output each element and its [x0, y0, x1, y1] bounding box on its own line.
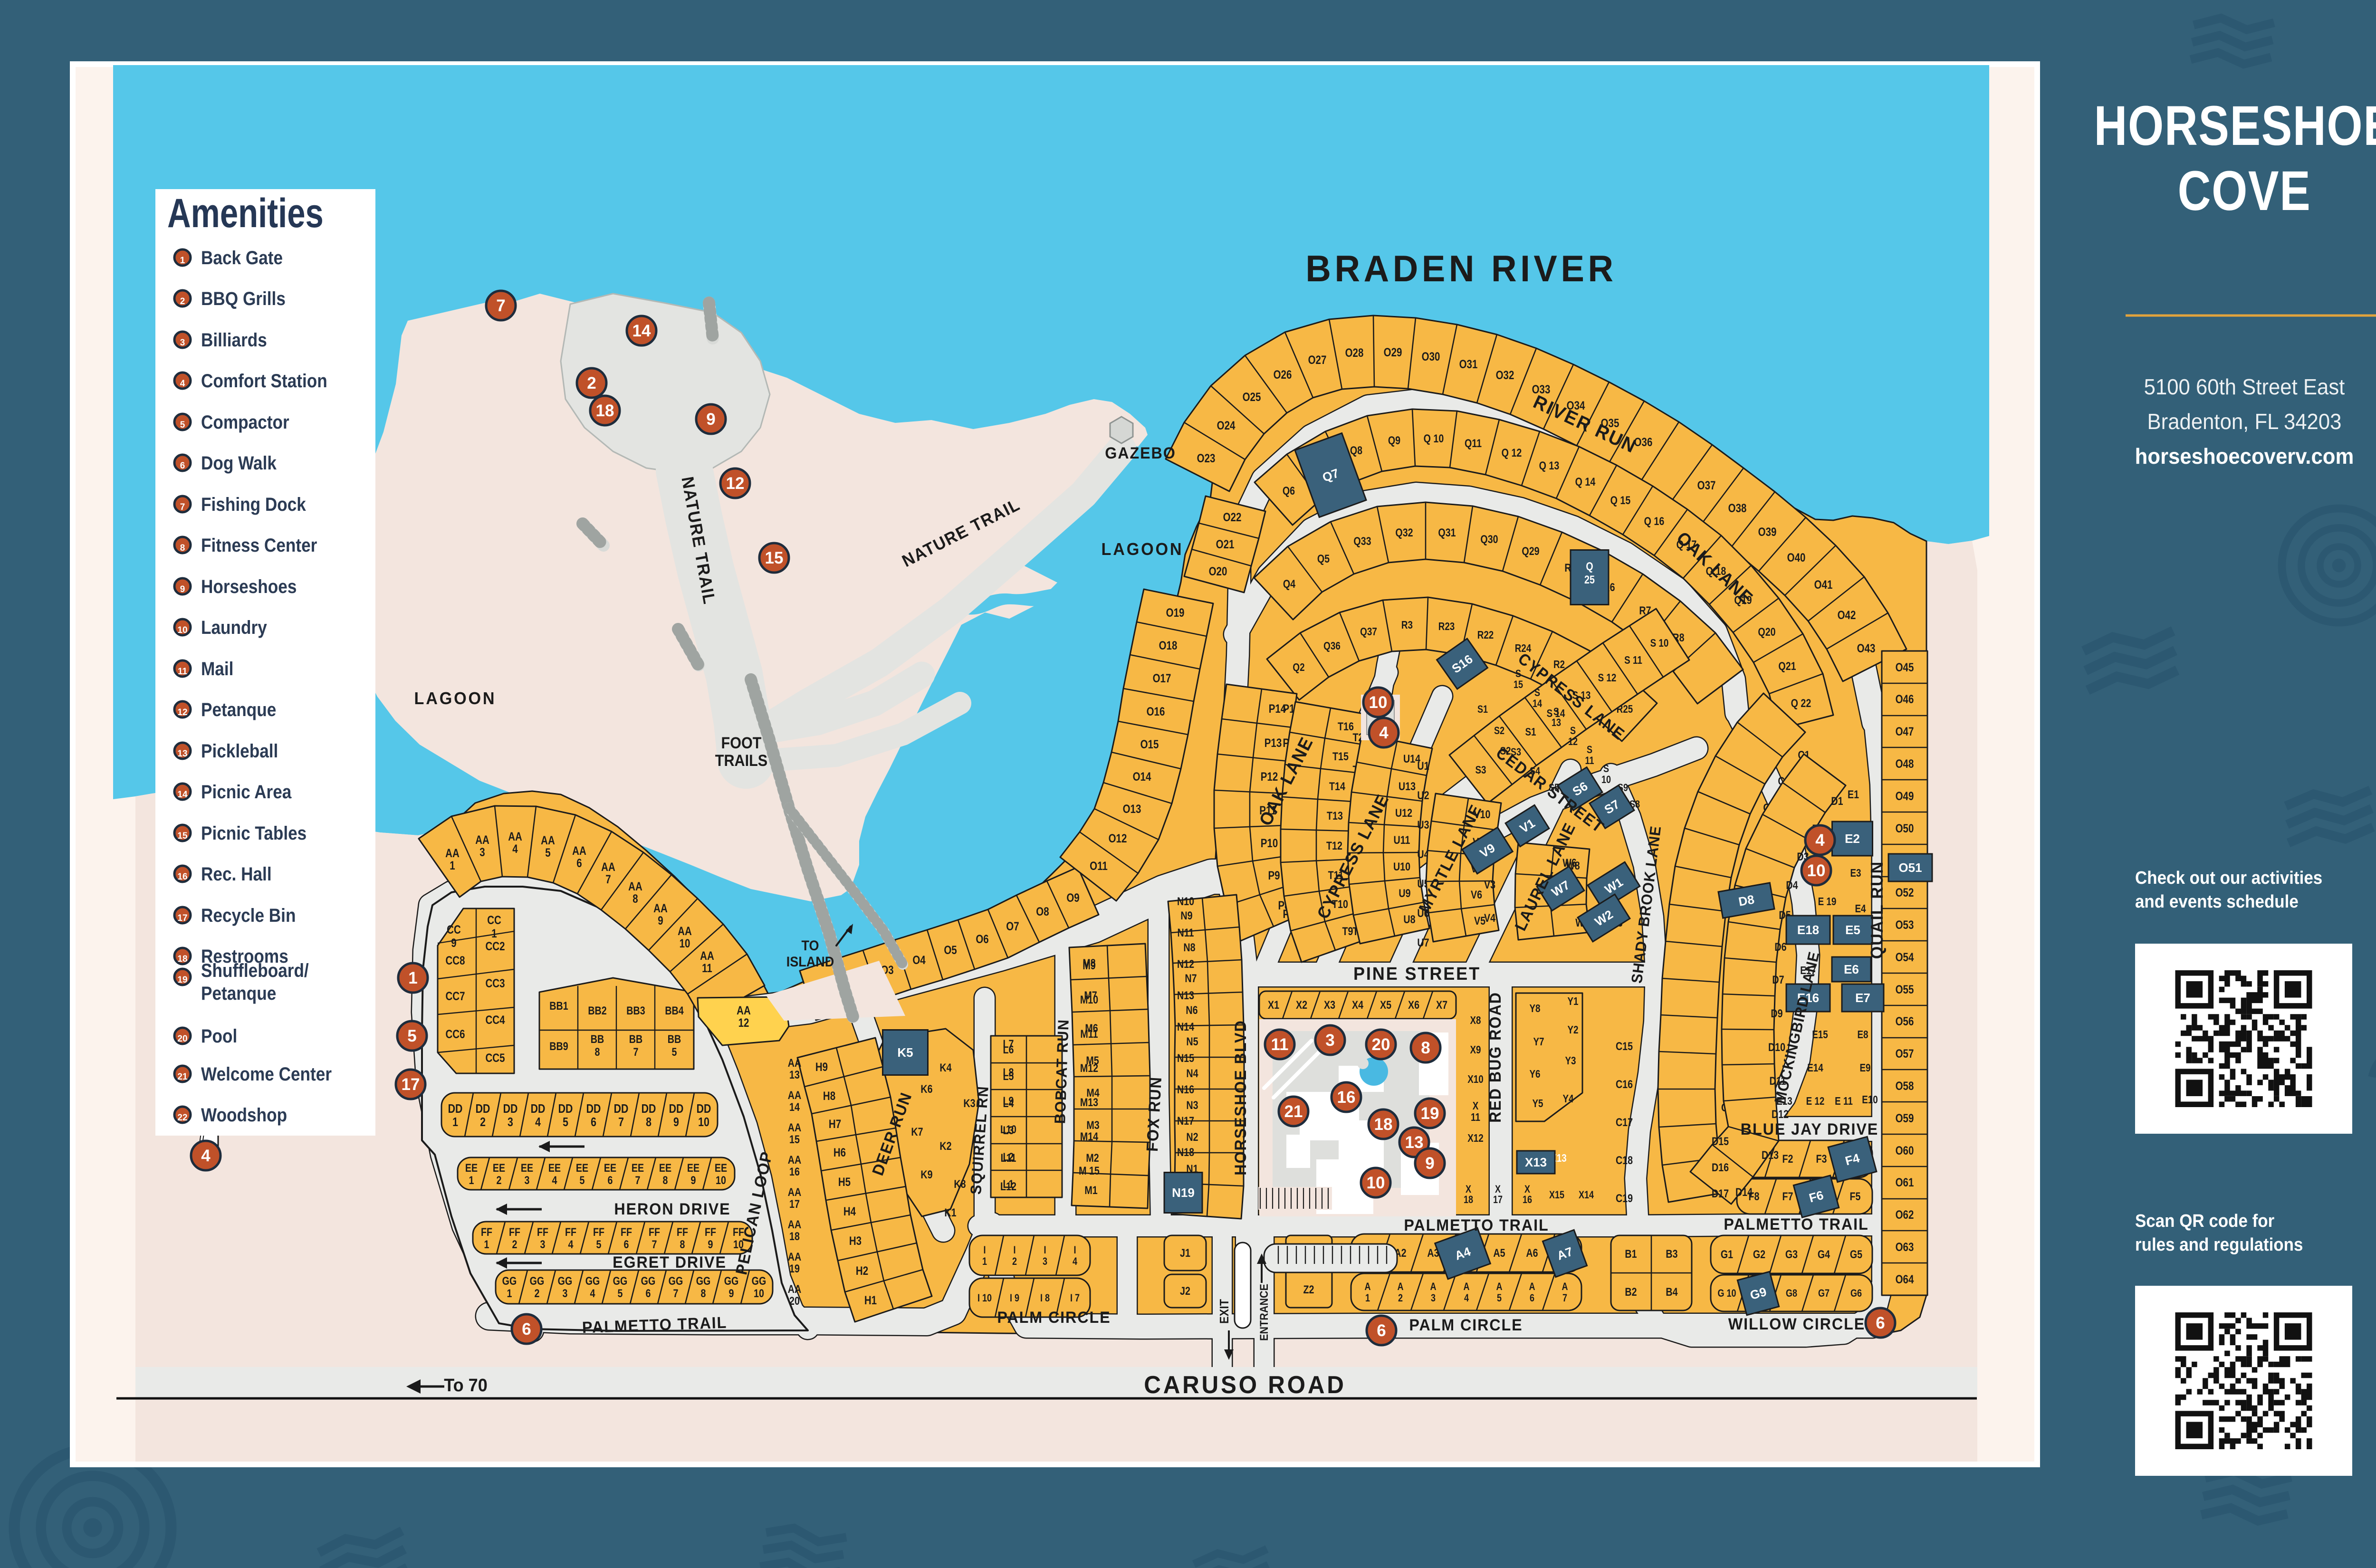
svg-text:BB: BB — [591, 1033, 604, 1045]
svg-text:Laundry: Laundry — [201, 617, 267, 638]
svg-text:G 10: G 10 — [1717, 1288, 1736, 1299]
svg-text:Comfort Station: Comfort Station — [201, 370, 327, 392]
svg-text:4: 4 — [180, 379, 185, 389]
svg-text:BRADEN RIVER: BRADEN RIVER — [1305, 248, 1617, 289]
svg-text:3: 3 — [1043, 1256, 1047, 1267]
svg-text:Amenities: Amenities — [167, 191, 324, 236]
svg-text:Picnic Area: Picnic Area — [201, 781, 292, 803]
svg-text:PALM CIRCLE: PALM CIRCLE — [1409, 1316, 1523, 1334]
svg-text:S 11: S 11 — [1624, 654, 1642, 666]
svg-text:X4: X4 — [1352, 998, 1364, 1011]
svg-text:F2: F2 — [1782, 1152, 1793, 1165]
svg-text:DD: DD — [642, 1102, 656, 1116]
svg-text:6: 6 — [608, 1174, 613, 1186]
svg-text:N5: N5 — [1186, 1035, 1198, 1048]
svg-text:QUAIL RUN: QUAIL RUN — [1868, 861, 1887, 959]
svg-text:3: 3 — [1325, 1031, 1334, 1050]
svg-text:FOOT: FOOT — [721, 734, 762, 752]
svg-text:A: A — [1364, 1281, 1370, 1292]
svg-text:RED BUG ROAD: RED BUG ROAD — [1486, 992, 1504, 1123]
svg-text:K8: K8 — [954, 1177, 966, 1190]
svg-text:K1: K1 — [944, 1206, 956, 1219]
svg-text:M1: M1 — [1084, 1184, 1097, 1196]
svg-text:M13: M13 — [1080, 1096, 1098, 1109]
svg-text:17: 17 — [1493, 1194, 1503, 1205]
svg-text:Y8: Y8 — [1529, 1003, 1540, 1014]
svg-text:CARUSO ROAD: CARUSO ROAD — [1144, 1371, 1346, 1398]
svg-text:O61: O61 — [1896, 1176, 1914, 1189]
svg-text:O48: O48 — [1896, 757, 1914, 770]
svg-text:U11: U11 — [1393, 833, 1410, 846]
svg-text:7: 7 — [496, 296, 505, 315]
svg-text:13: 13 — [1552, 717, 1561, 728]
svg-text:FF: FF — [621, 1225, 632, 1238]
svg-text:G7: G7 — [1818, 1288, 1830, 1299]
svg-text:F7: F7 — [1782, 1190, 1793, 1203]
svg-text:9: 9 — [729, 1287, 734, 1300]
svg-text:T15: T15 — [1332, 750, 1349, 763]
svg-text:M10: M10 — [1080, 993, 1098, 1006]
svg-text:S: S — [1570, 725, 1576, 736]
svg-text:6: 6 — [624, 1238, 629, 1251]
svg-text:C16: C16 — [1616, 1078, 1633, 1090]
svg-text:O38: O38 — [1728, 501, 1747, 515]
svg-text:M11: M11 — [1080, 1027, 1098, 1040]
svg-text:4: 4 — [512, 842, 518, 855]
svg-text:5: 5 — [545, 846, 551, 859]
svg-text:E2: E2 — [1845, 832, 1860, 846]
svg-text:Dog Walk: Dog Walk — [201, 452, 277, 474]
svg-text:TO: TO — [802, 938, 819, 954]
svg-text:O59: O59 — [1896, 1111, 1914, 1125]
svg-text:O9: O9 — [1066, 891, 1079, 904]
svg-text:A: A — [1496, 1281, 1502, 1292]
svg-text:O6: O6 — [976, 932, 988, 946]
svg-text:K5: K5 — [897, 1045, 913, 1060]
svg-text:9: 9 — [1425, 1154, 1434, 1173]
svg-text:O30: O30 — [1422, 350, 1440, 363]
svg-text:I: I — [1044, 1244, 1046, 1256]
svg-text:AA: AA — [737, 1004, 751, 1017]
svg-text:and events schedule: and events schedule — [2135, 891, 2299, 912]
svg-text:Shuffleboard/: Shuffleboard/ — [201, 960, 309, 981]
svg-text:H3: H3 — [849, 1234, 862, 1247]
svg-text:EE: EE — [632, 1161, 644, 1174]
svg-text:L7: L7 — [1003, 1037, 1014, 1050]
svg-text:3: 3 — [1431, 1292, 1436, 1304]
svg-text:DD: DD — [448, 1102, 463, 1116]
svg-text:E14: E14 — [1807, 1062, 1823, 1074]
svg-text:AA: AA — [788, 1218, 802, 1231]
svg-text:BB2: BB2 — [588, 1004, 606, 1017]
svg-text:1: 1 — [452, 1115, 458, 1129]
svg-text:Q20: Q20 — [1758, 625, 1775, 638]
svg-text:H9: H9 — [815, 1060, 828, 1073]
svg-text:AA: AA — [601, 860, 615, 873]
svg-text:EE: EE — [465, 1161, 478, 1174]
svg-text:T13: T13 — [1327, 809, 1343, 822]
svg-text:Y6: Y6 — [1529, 1068, 1540, 1080]
svg-text:AA: AA — [788, 1153, 802, 1166]
svg-text:17: 17 — [402, 1075, 420, 1094]
svg-text:2: 2 — [512, 1238, 517, 1251]
svg-text:10: 10 — [1367, 1174, 1385, 1192]
svg-text:O20: O20 — [1209, 564, 1227, 578]
svg-text:Q9: Q9 — [1388, 434, 1400, 447]
svg-text:S3: S3 — [1475, 764, 1486, 776]
svg-text:21: 21 — [177, 1072, 188, 1082]
svg-text:18: 18 — [1374, 1115, 1393, 1134]
svg-text:F3: F3 — [1816, 1152, 1827, 1165]
svg-text:GG: GG — [724, 1274, 739, 1287]
svg-text:K4: K4 — [939, 1061, 952, 1074]
svg-text:20: 20 — [789, 1294, 800, 1307]
svg-text:20: 20 — [177, 1034, 187, 1044]
svg-text:Petanque: Petanque — [201, 699, 276, 720]
svg-text:1: 1 — [180, 256, 185, 266]
svg-text:CC: CC — [487, 913, 501, 927]
svg-text:X14: X14 — [1579, 1189, 1594, 1201]
svg-text:M9: M9 — [1083, 959, 1095, 972]
svg-text:X7: X7 — [1436, 998, 1447, 1011]
svg-text:Z2: Z2 — [1303, 1283, 1314, 1296]
svg-text:EE: EE — [576, 1161, 588, 1174]
svg-text:10: 10 — [1369, 693, 1388, 712]
svg-text:O57: O57 — [1896, 1047, 1914, 1060]
svg-text:D14: D14 — [1735, 1186, 1753, 1198]
svg-text:DD: DD — [503, 1102, 518, 1116]
svg-text:AA: AA — [788, 1282, 802, 1295]
svg-text:2: 2 — [1012, 1256, 1017, 1267]
svg-text:D12: D12 — [1772, 1108, 1789, 1120]
svg-text:E6: E6 — [1844, 962, 1859, 976]
svg-text:T12: T12 — [1326, 839, 1342, 852]
svg-text:O27: O27 — [1308, 353, 1327, 366]
svg-text:R23: R23 — [1438, 621, 1455, 632]
svg-text:15: 15 — [789, 1133, 800, 1146]
svg-text:DD: DD — [531, 1102, 546, 1116]
svg-text:Back Gate: Back Gate — [201, 247, 283, 268]
svg-text:22: 22 — [177, 1113, 187, 1123]
svg-text:Q21: Q21 — [1778, 660, 1796, 672]
svg-text:3: 3 — [540, 1238, 546, 1251]
svg-text:DD: DD — [669, 1102, 684, 1116]
svg-text:CC2: CC2 — [485, 939, 505, 953]
svg-text:EE: EE — [493, 1161, 505, 1174]
svg-text:M12: M12 — [1080, 1061, 1098, 1074]
svg-text:1: 1 — [1365, 1292, 1370, 1304]
svg-text:4: 4 — [1073, 1256, 1078, 1267]
svg-text:2: 2 — [480, 1115, 486, 1129]
svg-text:BB3: BB3 — [626, 1004, 645, 1017]
svg-text:X15: X15 — [1549, 1189, 1564, 1201]
svg-text:AA: AA — [508, 830, 522, 843]
svg-text:S1: S1 — [1525, 726, 1536, 738]
svg-text:6: 6 — [591, 1115, 596, 1129]
svg-text:rules and regulations: rules and regulations — [2135, 1234, 2303, 1255]
svg-text:Q 14: Q 14 — [1575, 475, 1596, 488]
svg-text:14: 14 — [789, 1100, 800, 1113]
svg-text:N14: N14 — [1177, 1020, 1195, 1033]
svg-text:BB1: BB1 — [549, 999, 568, 1012]
svg-text:BLUE JAY DRIVE: BLUE JAY DRIVE — [1741, 1120, 1878, 1138]
svg-text:1: 1 — [507, 1287, 512, 1300]
svg-text:Welcome Center: Welcome Center — [201, 1063, 332, 1085]
svg-text:U7: U7 — [1417, 936, 1429, 949]
svg-text:K7: K7 — [911, 1125, 923, 1138]
svg-text:16: 16 — [1337, 1088, 1356, 1107]
svg-text:PALM CIRCLE: PALM CIRCLE — [997, 1309, 1111, 1327]
svg-text:Fitness Center: Fitness Center — [201, 535, 317, 556]
svg-text:M2: M2 — [1086, 1151, 1099, 1164]
svg-text:G2: G2 — [1753, 1248, 1765, 1261]
svg-text:O15: O15 — [1140, 737, 1159, 751]
svg-text:EE: EE — [687, 1161, 699, 1174]
svg-text:BBQ Grills: BBQ Grills — [201, 288, 286, 309]
svg-text:15: 15 — [765, 549, 784, 567]
svg-text:PALMETTO TRAIL: PALMETTO TRAIL — [1724, 1215, 1868, 1233]
svg-text:EXIT: EXIT — [1218, 1299, 1231, 1324]
svg-text:H8: H8 — [823, 1089, 835, 1102]
svg-text:13: 13 — [177, 749, 187, 759]
svg-text:O16: O16 — [1147, 705, 1165, 718]
svg-text:12: 12 — [738, 1016, 749, 1029]
svg-text:X3: X3 — [1324, 998, 1335, 1011]
svg-text:AA: AA — [541, 833, 555, 847]
svg-text:P9: P9 — [1268, 869, 1280, 882]
svg-text:O21: O21 — [1216, 537, 1235, 551]
svg-text:O62: O62 — [1896, 1208, 1914, 1221]
svg-text:R3: R3 — [1401, 619, 1413, 631]
svg-text:4: 4 — [535, 1115, 541, 1129]
svg-text:Bradenton, FL 34203: Bradenton, FL 34203 — [2147, 409, 2342, 434]
svg-text:Recycle Bin: Recycle Bin — [201, 905, 296, 926]
svg-text:O24: O24 — [1217, 419, 1236, 432]
svg-text:19: 19 — [1421, 1104, 1439, 1123]
svg-text:FF: FF — [509, 1225, 520, 1238]
svg-text:S: S — [1587, 744, 1592, 755]
svg-text:GG: GG — [558, 1274, 573, 1287]
svg-text:S2: S2 — [1494, 725, 1504, 736]
svg-text:I 8: I 8 — [1040, 1292, 1050, 1304]
svg-text:O46: O46 — [1896, 692, 1914, 706]
svg-text:Pool: Pool — [201, 1025, 237, 1047]
svg-text:Q8: Q8 — [1350, 444, 1362, 457]
svg-text:O50: O50 — [1896, 822, 1914, 835]
svg-text:O26: O26 — [1274, 368, 1292, 381]
svg-text:E8: E8 — [1857, 1029, 1868, 1041]
svg-text:G6: G6 — [1850, 1288, 1862, 1299]
svg-text:FF: FF — [593, 1225, 604, 1238]
svg-text:X: X — [1466, 1184, 1472, 1195]
svg-text:1: 1 — [450, 859, 455, 872]
svg-text:O45: O45 — [1896, 660, 1914, 674]
svg-text:Q4: Q4 — [1283, 577, 1296, 590]
svg-text:EE: EE — [715, 1161, 727, 1174]
svg-text:A: A — [1529, 1281, 1535, 1292]
svg-text:N8: N8 — [1183, 941, 1195, 954]
svg-text:Q6: Q6 — [1283, 484, 1295, 497]
svg-text:C15: C15 — [1616, 1040, 1633, 1052]
svg-text:DD: DD — [697, 1102, 711, 1116]
svg-text:L9: L9 — [1003, 1094, 1014, 1107]
svg-text:FF: FF — [649, 1225, 660, 1238]
svg-text:14: 14 — [1533, 698, 1542, 709]
svg-text:O52: O52 — [1896, 886, 1914, 899]
svg-text:3: 3 — [479, 845, 485, 859]
svg-text:17: 17 — [177, 913, 187, 923]
svg-text:Fishing Dock: Fishing Dock — [201, 494, 306, 515]
svg-text:Woodshop: Woodshop — [201, 1104, 287, 1126]
svg-text:4: 4 — [1379, 724, 1389, 742]
svg-text:N13: N13 — [1177, 989, 1194, 1002]
svg-text:HERON DRIVE: HERON DRIVE — [614, 1200, 730, 1218]
svg-text:A6: A6 — [1526, 1246, 1538, 1259]
svg-text:C19: C19 — [1616, 1192, 1633, 1205]
svg-text:A: A — [1397, 1281, 1403, 1292]
svg-text:B2: B2 — [1625, 1285, 1637, 1298]
svg-text:3: 3 — [180, 338, 185, 348]
svg-text:25: 25 — [1584, 573, 1595, 586]
svg-text:S: S — [1534, 687, 1540, 698]
svg-text:GG: GG — [585, 1274, 600, 1287]
svg-text:8: 8 — [595, 1045, 600, 1058]
svg-text:12: 12 — [726, 474, 745, 493]
svg-text:B1: B1 — [1625, 1247, 1637, 1260]
svg-text:11: 11 — [702, 961, 712, 975]
svg-text:D15: D15 — [1712, 1135, 1729, 1147]
svg-text:18: 18 — [596, 402, 614, 420]
svg-text:O54: O54 — [1896, 950, 1914, 964]
svg-text:Scan QR code for: Scan QR code for — [2135, 1211, 2274, 1231]
svg-text:R22: R22 — [1477, 629, 1494, 641]
svg-text:FF: FF — [481, 1225, 492, 1238]
svg-text:N12: N12 — [1177, 957, 1194, 970]
svg-text:AA: AA — [700, 949, 714, 962]
svg-text:O60: O60 — [1896, 1144, 1914, 1157]
svg-text:Q11: Q11 — [1465, 437, 1482, 449]
svg-text:T9: T9 — [1342, 925, 1353, 937]
svg-text:X2: X2 — [1296, 998, 1307, 1011]
svg-text:Q33: Q33 — [1353, 535, 1371, 547]
svg-text:TRAILS: TRAILS — [715, 752, 767, 770]
svg-text:G4: G4 — [1818, 1248, 1830, 1261]
svg-text:O31: O31 — [1459, 357, 1478, 371]
svg-text:CC8: CC8 — [445, 954, 465, 967]
svg-text:Y3: Y3 — [1565, 1055, 1576, 1067]
svg-text:J2: J2 — [1180, 1284, 1190, 1297]
svg-text:V4: V4 — [1484, 911, 1496, 924]
svg-text:10: 10 — [716, 1174, 726, 1186]
svg-text:1: 1 — [408, 969, 417, 987]
svg-text:3: 3 — [508, 1115, 513, 1129]
svg-text:N2: N2 — [1186, 1130, 1198, 1143]
svg-text:Q37: Q37 — [1360, 626, 1377, 638]
svg-text:T14: T14 — [1329, 780, 1346, 793]
svg-text:U13: U13 — [1399, 780, 1416, 793]
svg-text:S 12: S 12 — [1598, 672, 1617, 684]
svg-text:K6: K6 — [920, 1082, 932, 1095]
svg-text:O29: O29 — [1384, 345, 1402, 359]
svg-text:8: 8 — [701, 1287, 706, 1300]
svg-text:N9: N9 — [1180, 909, 1192, 922]
svg-text:C17: C17 — [1616, 1116, 1633, 1128]
svg-text:GG: GG — [502, 1274, 517, 1287]
svg-text:AA: AA — [678, 924, 692, 937]
svg-text:L8: L8 — [1003, 1066, 1014, 1079]
svg-text:LAGOON: LAGOON — [1102, 540, 1184, 559]
svg-text:BB9: BB9 — [549, 1040, 568, 1052]
svg-text:S: S — [1553, 706, 1559, 717]
svg-text:D16: D16 — [1712, 1161, 1729, 1174]
svg-text:Y2: Y2 — [1567, 1024, 1578, 1036]
svg-text:8: 8 — [1421, 1039, 1430, 1057]
svg-text:8: 8 — [632, 892, 638, 905]
svg-text:U2: U2 — [1417, 789, 1429, 802]
svg-text:CC5: CC5 — [485, 1051, 505, 1064]
svg-text:N15: N15 — [1177, 1052, 1194, 1064]
svg-text:5100 60th Street East: 5100 60th Street East — [2144, 374, 2345, 399]
svg-text:AA: AA — [572, 844, 586, 857]
svg-text:8: 8 — [180, 543, 185, 553]
svg-text:PINE STREET: PINE STREET — [1353, 963, 1481, 984]
svg-text:horseshoecoverv.com: horseshoecoverv.com — [2135, 444, 2354, 468]
svg-text:2: 2 — [497, 1174, 502, 1186]
svg-text:5: 5 — [596, 1238, 602, 1251]
svg-text:I 9: I 9 — [1010, 1292, 1019, 1304]
svg-text:N11: N11 — [1177, 926, 1194, 939]
svg-text:Y7: Y7 — [1533, 1036, 1544, 1048]
svg-text:12: 12 — [177, 708, 187, 717]
svg-text:O22: O22 — [1223, 510, 1242, 524]
svg-text:11: 11 — [178, 667, 188, 677]
svg-text:CC4: CC4 — [485, 1013, 505, 1026]
svg-text:N16: N16 — [1177, 1083, 1194, 1096]
svg-text:9: 9 — [451, 936, 456, 949]
svg-text:CC7: CC7 — [445, 989, 465, 1003]
svg-text:Q29: Q29 — [1522, 545, 1539, 557]
svg-text:7: 7 — [1562, 1292, 1567, 1304]
svg-text:9: 9 — [708, 1238, 713, 1251]
svg-text:17: 17 — [789, 1197, 800, 1210]
svg-text:7: 7 — [673, 1287, 679, 1300]
svg-text:I: I — [1013, 1244, 1016, 1256]
svg-text:H2: H2 — [856, 1264, 868, 1277]
svg-text:FF: FF — [677, 1225, 688, 1238]
svg-text:D6: D6 — [1774, 940, 1786, 953]
svg-text:O11: O11 — [1090, 859, 1108, 872]
svg-text:D1: D1 — [1831, 794, 1843, 807]
svg-text:COVE: COVE — [2178, 159, 2311, 222]
svg-text:10: 10 — [754, 1287, 764, 1300]
svg-text:Pickleball: Pickleball — [201, 740, 278, 762]
svg-text:DD: DD — [614, 1102, 629, 1116]
svg-text:21: 21 — [1284, 1102, 1303, 1121]
svg-text:12: 12 — [1568, 736, 1578, 747]
svg-text:E 11: E 11 — [1835, 1095, 1853, 1107]
svg-text:9: 9 — [673, 1115, 679, 1129]
svg-text:O32: O32 — [1496, 368, 1514, 382]
svg-text:T16: T16 — [1338, 720, 1354, 733]
svg-text:O7: O7 — [1006, 919, 1019, 933]
svg-text:S 10: S 10 — [1650, 637, 1669, 649]
svg-text:AA: AA — [445, 846, 460, 860]
svg-text:4: 4 — [1464, 1292, 1469, 1304]
svg-text:9: 9 — [691, 1174, 696, 1186]
svg-text:GG: GG — [641, 1274, 656, 1287]
svg-text:Q 10: Q 10 — [1424, 432, 1444, 445]
svg-text:D7: D7 — [1772, 973, 1784, 986]
